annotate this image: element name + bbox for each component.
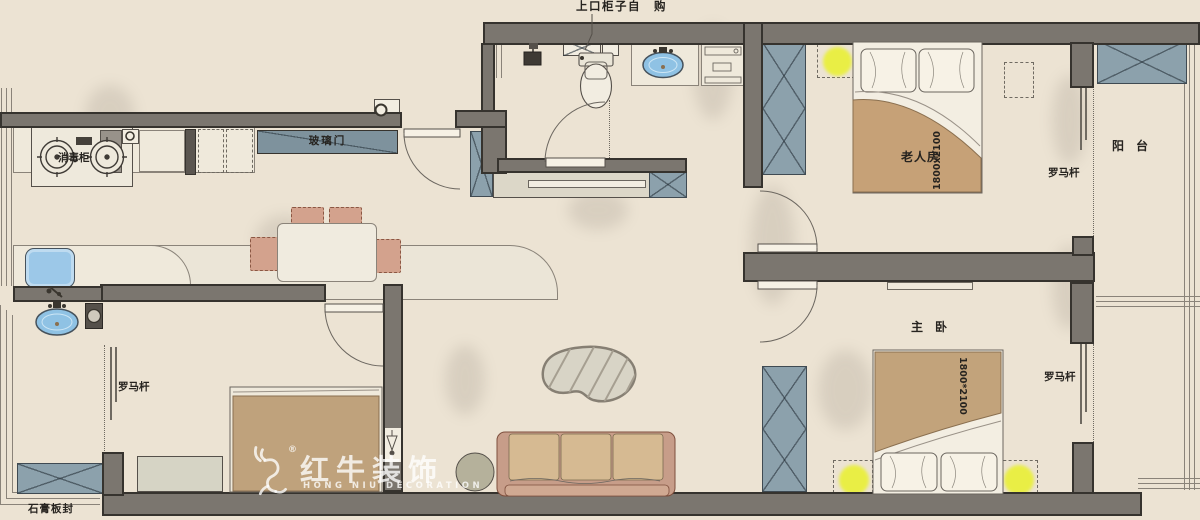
hall-right-wall <box>743 22 763 188</box>
top-cabinet-note: 上口柜子自 购 <box>576 1 667 13</box>
elder-balcony-wall <box>1070 42 1094 88</box>
meter-box <box>122 129 139 144</box>
master-lamp <box>839 465 869 495</box>
upper-cabinet-dashed <box>226 129 253 173</box>
shadow <box>818 350 873 430</box>
tv-slot <box>528 180 646 188</box>
bedroom2-top-wall <box>100 284 326 302</box>
bath-bottom-wall <box>497 158 687 173</box>
curtain-rod-label: 罗马杆 <box>1044 372 1076 383</box>
kitchen-sink <box>25 248 75 288</box>
elder-bed <box>853 42 982 193</box>
elder-balcony-wall <box>1072 236 1094 256</box>
tv-side-panel <box>649 171 687 198</box>
bottom-exterior-wall <box>102 492 1142 516</box>
kitchen-dark-strip <box>185 129 196 175</box>
bath-door-dotted-line <box>609 100 610 158</box>
pipe-column <box>85 303 103 329</box>
master-lamp <box>1004 465 1034 495</box>
shadow <box>750 185 795 305</box>
balcony-bottom-frame <box>1138 478 1200 491</box>
curtain-rod-line <box>110 347 112 420</box>
curtain-rod-line <box>1085 86 1087 140</box>
dining-table <box>277 223 377 282</box>
sofa <box>497 432 675 496</box>
curtain-rod-line <box>115 347 117 402</box>
curtain-rod-line <box>1080 344 1082 424</box>
glass-door-label: 玻璃门 <box>257 136 398 147</box>
vanity-counter <box>631 42 699 86</box>
master-bed-size-label: 1800*2100 <box>957 357 968 415</box>
elder-side-table <box>1004 62 1034 98</box>
elder-bed-size-label: 1800x2100 <box>932 131 943 190</box>
low-cabinet <box>137 456 223 492</box>
curtain-rod-line <box>1085 344 1087 412</box>
watermark-brand-en: HONG NIU DECORATION <box>303 481 483 491</box>
master-wardrobe <box>762 366 807 492</box>
gypsum-board-label: 石膏板封 <box>28 504 74 515</box>
master-bed <box>873 350 1003 494</box>
floor-plan: 上口柜子自 购 玻璃门 消毒柜 老人房 1800x2100 阳 台 罗马杆 罗马… <box>0 0 1200 520</box>
elder-wardrobe <box>762 42 806 175</box>
curtain-rod-label: 罗马杆 <box>118 382 150 393</box>
bedroom2-corner-wall <box>102 452 124 496</box>
master-room-label: 主 卧 <box>911 321 947 333</box>
window-seat <box>17 463 103 494</box>
watermark-registered: ® <box>288 445 297 455</box>
balcony-cabinet <box>1097 40 1187 84</box>
door-sill <box>887 282 973 290</box>
bedroom-divider-wall <box>743 252 1095 282</box>
elder-lamp <box>823 47 852 76</box>
curtain-rod-label: 罗马杆 <box>1048 168 1080 179</box>
balcony-right-window <box>1184 40 1198 490</box>
ensuite-top-wall <box>13 286 103 302</box>
toilet <box>579 53 613 108</box>
bull-icon <box>255 448 285 494</box>
kitchen-column <box>100 130 122 173</box>
kitchen-top-wall <box>0 112 402 128</box>
shower-head <box>524 43 541 65</box>
shadow <box>445 345 485 415</box>
rug <box>543 340 648 412</box>
curtain-dotted-line <box>1093 86 1094 240</box>
sterilizer-cabinet-label: 消毒柜 <box>58 153 90 164</box>
master-balcony-wall <box>1070 282 1094 344</box>
kitchen-cabinet <box>139 130 185 172</box>
curtain-dotted-line <box>1093 344 1094 444</box>
balcony-mid-frame <box>1096 296 1200 309</box>
washing-machine <box>701 42 745 86</box>
curtain-rod-line <box>1080 86 1082 150</box>
upper-cabinet-dashed <box>198 129 224 173</box>
balcony-label: 阳 台 <box>1112 140 1148 152</box>
master-balcony-wall <box>1072 442 1094 494</box>
